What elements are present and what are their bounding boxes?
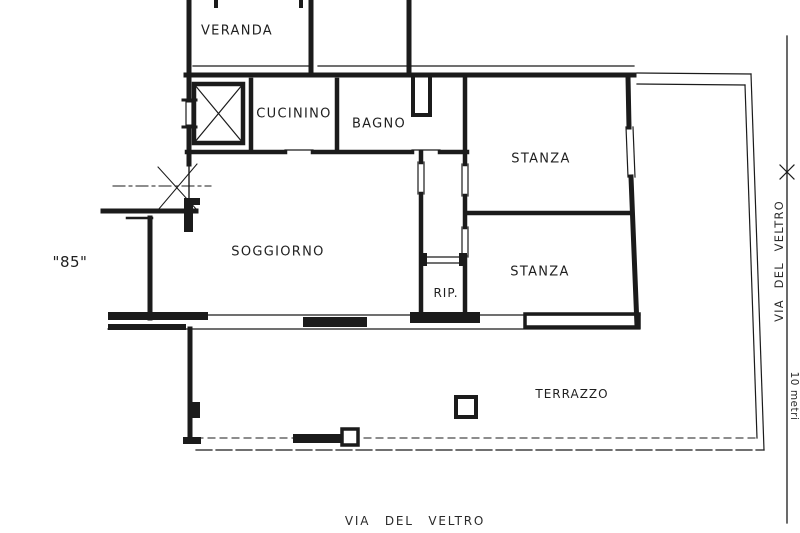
room-label-veranda: VERANDA (201, 24, 273, 39)
hall-top-wall (187, 150, 467, 152)
room-label-stanza-top: STANZA (511, 152, 570, 167)
scale-label: 10 metri (788, 372, 800, 421)
street-label-bottom: VIA DEL VELTRO (345, 514, 485, 528)
terrace-pillar (456, 397, 476, 417)
room-label-bagno: BAGNO (352, 117, 406, 132)
corridor-left-wall (418, 152, 424, 316)
right-wall (626, 77, 637, 326)
floor-plan-page: VERANDA CUCININO BAGNO STANZA SOGGIORNO … (0, 0, 800, 533)
room-label-rip: RIP. (433, 286, 458, 300)
floor-plan-drawing (0, 0, 800, 533)
room-label-soggiorno: SOGGIORNO (231, 245, 324, 260)
room-label-stanza-bottom: STANZA (510, 265, 569, 280)
terrace-outline (183, 73, 764, 450)
street-label-right: VIA DEL VELTRO (772, 200, 786, 322)
rip-door (419, 253, 467, 266)
unit-number-label: "85" (53, 253, 88, 271)
room-label-cucinino: CUCININO (256, 107, 331, 122)
veranda-walls (189, 0, 311, 77)
entrance-door (113, 162, 211, 232)
soggiorno-left-wall (103, 211, 196, 318)
room-label-terrazzo: TERRAZZO (535, 387, 608, 401)
corridor-right-wall (462, 78, 468, 318)
shaft-box (194, 84, 243, 143)
